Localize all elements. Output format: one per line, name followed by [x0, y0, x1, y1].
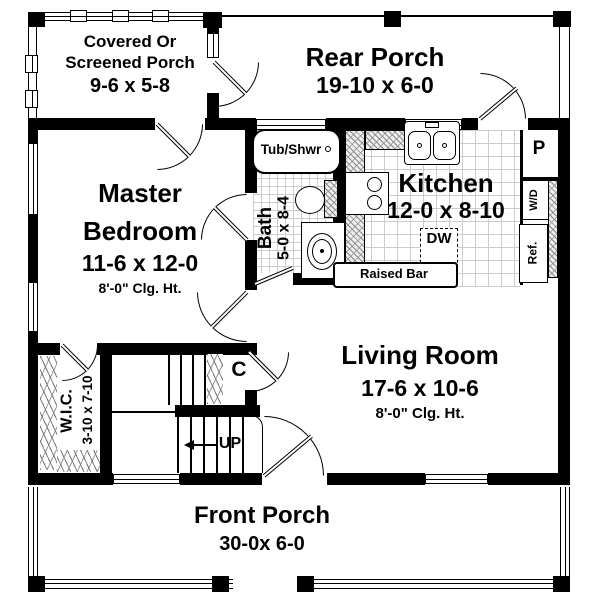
- covered-porch-label-line1: Covered Or: [84, 33, 177, 51]
- interior-wall: [100, 355, 112, 473]
- front-porch-dims: 30-0x 6-0: [219, 534, 305, 555]
- exterior-wall: [327, 473, 425, 485]
- screen-panel-icon: [112, 10, 129, 22]
- front-porch-bottom-rail: [28, 579, 233, 589]
- dishwasher-label: DW: [427, 231, 452, 247]
- master-bedroom-dims: 11-6 x 12-0: [82, 251, 198, 275]
- floor-plan: Tub/Shwr DW Raised Bar P W/D Ref. UP: [0, 0, 600, 603]
- front-porch-left-rail: [28, 487, 38, 590]
- exterior-wall: [28, 118, 38, 143]
- range: [345, 172, 389, 215]
- porch-post: [553, 11, 571, 27]
- bath-label: Bath: [256, 207, 276, 249]
- wic-shelving: [57, 450, 100, 472]
- tub-shower-label: Tub/Shwr: [261, 143, 322, 157]
- living-room-label: Living Room: [341, 342, 498, 369]
- closet-shelving: [207, 354, 223, 404]
- screen-panel-icon: [25, 55, 38, 73]
- front-porch-label: Front Porch: [194, 503, 330, 528]
- interior-wall: [97, 343, 257, 355]
- kitchen-dims: 12-0 x 8-10: [387, 198, 505, 222]
- tub-faucet-icon: [325, 146, 331, 152]
- master-bedroom-ceiling: 8'-0" Clg. Ht.: [98, 281, 181, 296]
- exterior-wall: [488, 473, 570, 485]
- master-bedroom-label-line1: Master: [98, 180, 182, 207]
- exterior-wall: [28, 118, 155, 130]
- up-arrow-line: [193, 444, 217, 446]
- porch-divider-wall: [207, 13, 219, 33]
- porch-post: [553, 576, 570, 592]
- stair-tread: [242, 415, 244, 473]
- exterior-wall: [205, 118, 256, 130]
- porch-post: [384, 11, 401, 27]
- covered-porch-label-line2: Screened Porch: [65, 54, 194, 72]
- master-bedroom-label-line2: Bedroom: [83, 218, 197, 245]
- closet-left-edge: [204, 353, 206, 405]
- covered-porch-dims: 9-6 x 5-8: [90, 76, 170, 97]
- screen-panel-icon: [70, 10, 87, 22]
- kitchen-label: Kitchen: [398, 170, 493, 197]
- vanity-drain-icon: [320, 249, 324, 253]
- porch-post: [297, 576, 314, 592]
- front-porch-bottom-rail: [298, 579, 570, 589]
- wic-dims: 3-10 x 7-10: [81, 375, 95, 444]
- sink-drain-icon: [442, 143, 447, 148]
- rear-porch-dims: 19-10 x 6-0: [316, 73, 434, 97]
- exterior-wall: [462, 118, 478, 130]
- burner-icon: [367, 195, 382, 210]
- closet-label: C: [231, 359, 246, 381]
- stairs-label: UP: [219, 436, 241, 453]
- stair-landing-edge: [112, 411, 178, 413]
- living-room-dims: 17-6 x 10-6: [361, 376, 479, 400]
- stair-tread: [168, 353, 170, 405]
- exterior-wall: [558, 118, 570, 485]
- toilet-tank: [324, 180, 338, 218]
- bedroom-window: [28, 143, 38, 215]
- raised-bar-label: Raised Bar: [360, 267, 428, 281]
- wic-shelving: [40, 356, 57, 470]
- living-room-ceiling: 8'-0" Clg. Ht.: [375, 406, 464, 422]
- screen-panel-icon: [207, 33, 219, 58]
- stair-tread: [180, 353, 182, 405]
- interior-wall: [245, 273, 253, 285]
- kitchen-counter-top: [365, 130, 405, 150]
- pantry-label: P: [533, 139, 546, 159]
- toilet-bowl: [295, 186, 325, 214]
- appliance-counter: [548, 180, 558, 278]
- stair-window: [113, 474, 180, 484]
- exterior-wall: [180, 473, 262, 485]
- screen-panel-icon: [25, 90, 38, 108]
- rear-porch-right-rail: [559, 16, 570, 118]
- stair-tread: [177, 415, 179, 473]
- porch-post: [28, 576, 45, 592]
- rear-porch-label: Rear Porch: [306, 44, 445, 71]
- washer-dryer-label: W/D: [529, 189, 541, 210]
- front-porch-right-rail: [560, 487, 570, 590]
- interior-wall: [28, 343, 60, 355]
- exterior-wall: [28, 473, 113, 485]
- bedroom-window: [28, 282, 38, 332]
- exterior-wall: [28, 215, 38, 282]
- sink-faucet-icon: [425, 122, 439, 128]
- screen-panel-icon: [152, 10, 169, 22]
- living-room-window: [425, 474, 488, 484]
- bath-dims: 5-0 x 8-4: [277, 196, 294, 260]
- porch-post: [28, 12, 45, 27]
- porch-post: [212, 576, 229, 592]
- refrigerator-label: Ref.: [527, 242, 540, 265]
- wic-label: W.I.C.: [60, 389, 77, 433]
- burner-icon: [367, 177, 382, 192]
- exterior-wall: [326, 118, 405, 130]
- sink-drain-icon: [417, 143, 422, 148]
- stair-boundary: [247, 415, 263, 473]
- stair-tread: [192, 353, 194, 405]
